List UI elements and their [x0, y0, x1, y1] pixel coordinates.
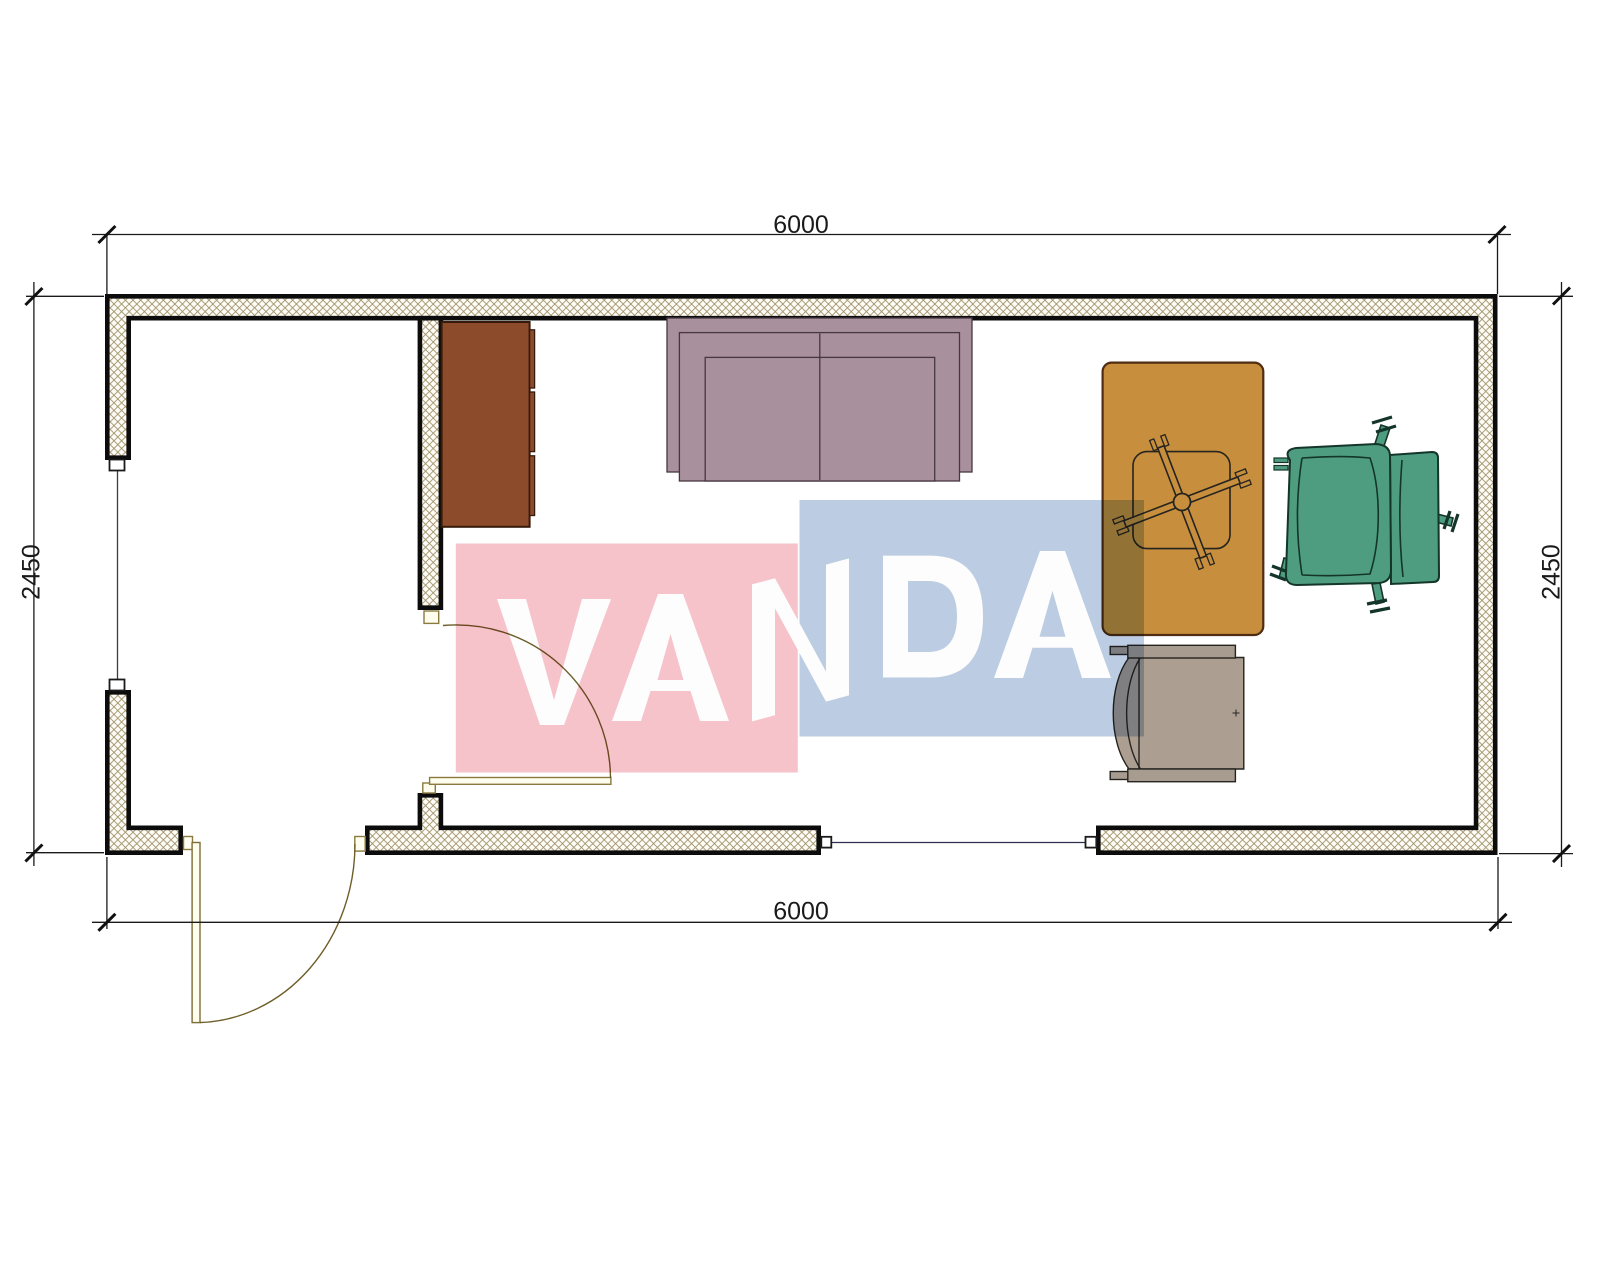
svg-text:6000: 6000 [773, 898, 829, 926]
svg-text:2450: 2450 [17, 544, 45, 600]
svg-text:6000: 6000 [773, 211, 829, 239]
svg-text:2450: 2450 [1537, 544, 1565, 600]
